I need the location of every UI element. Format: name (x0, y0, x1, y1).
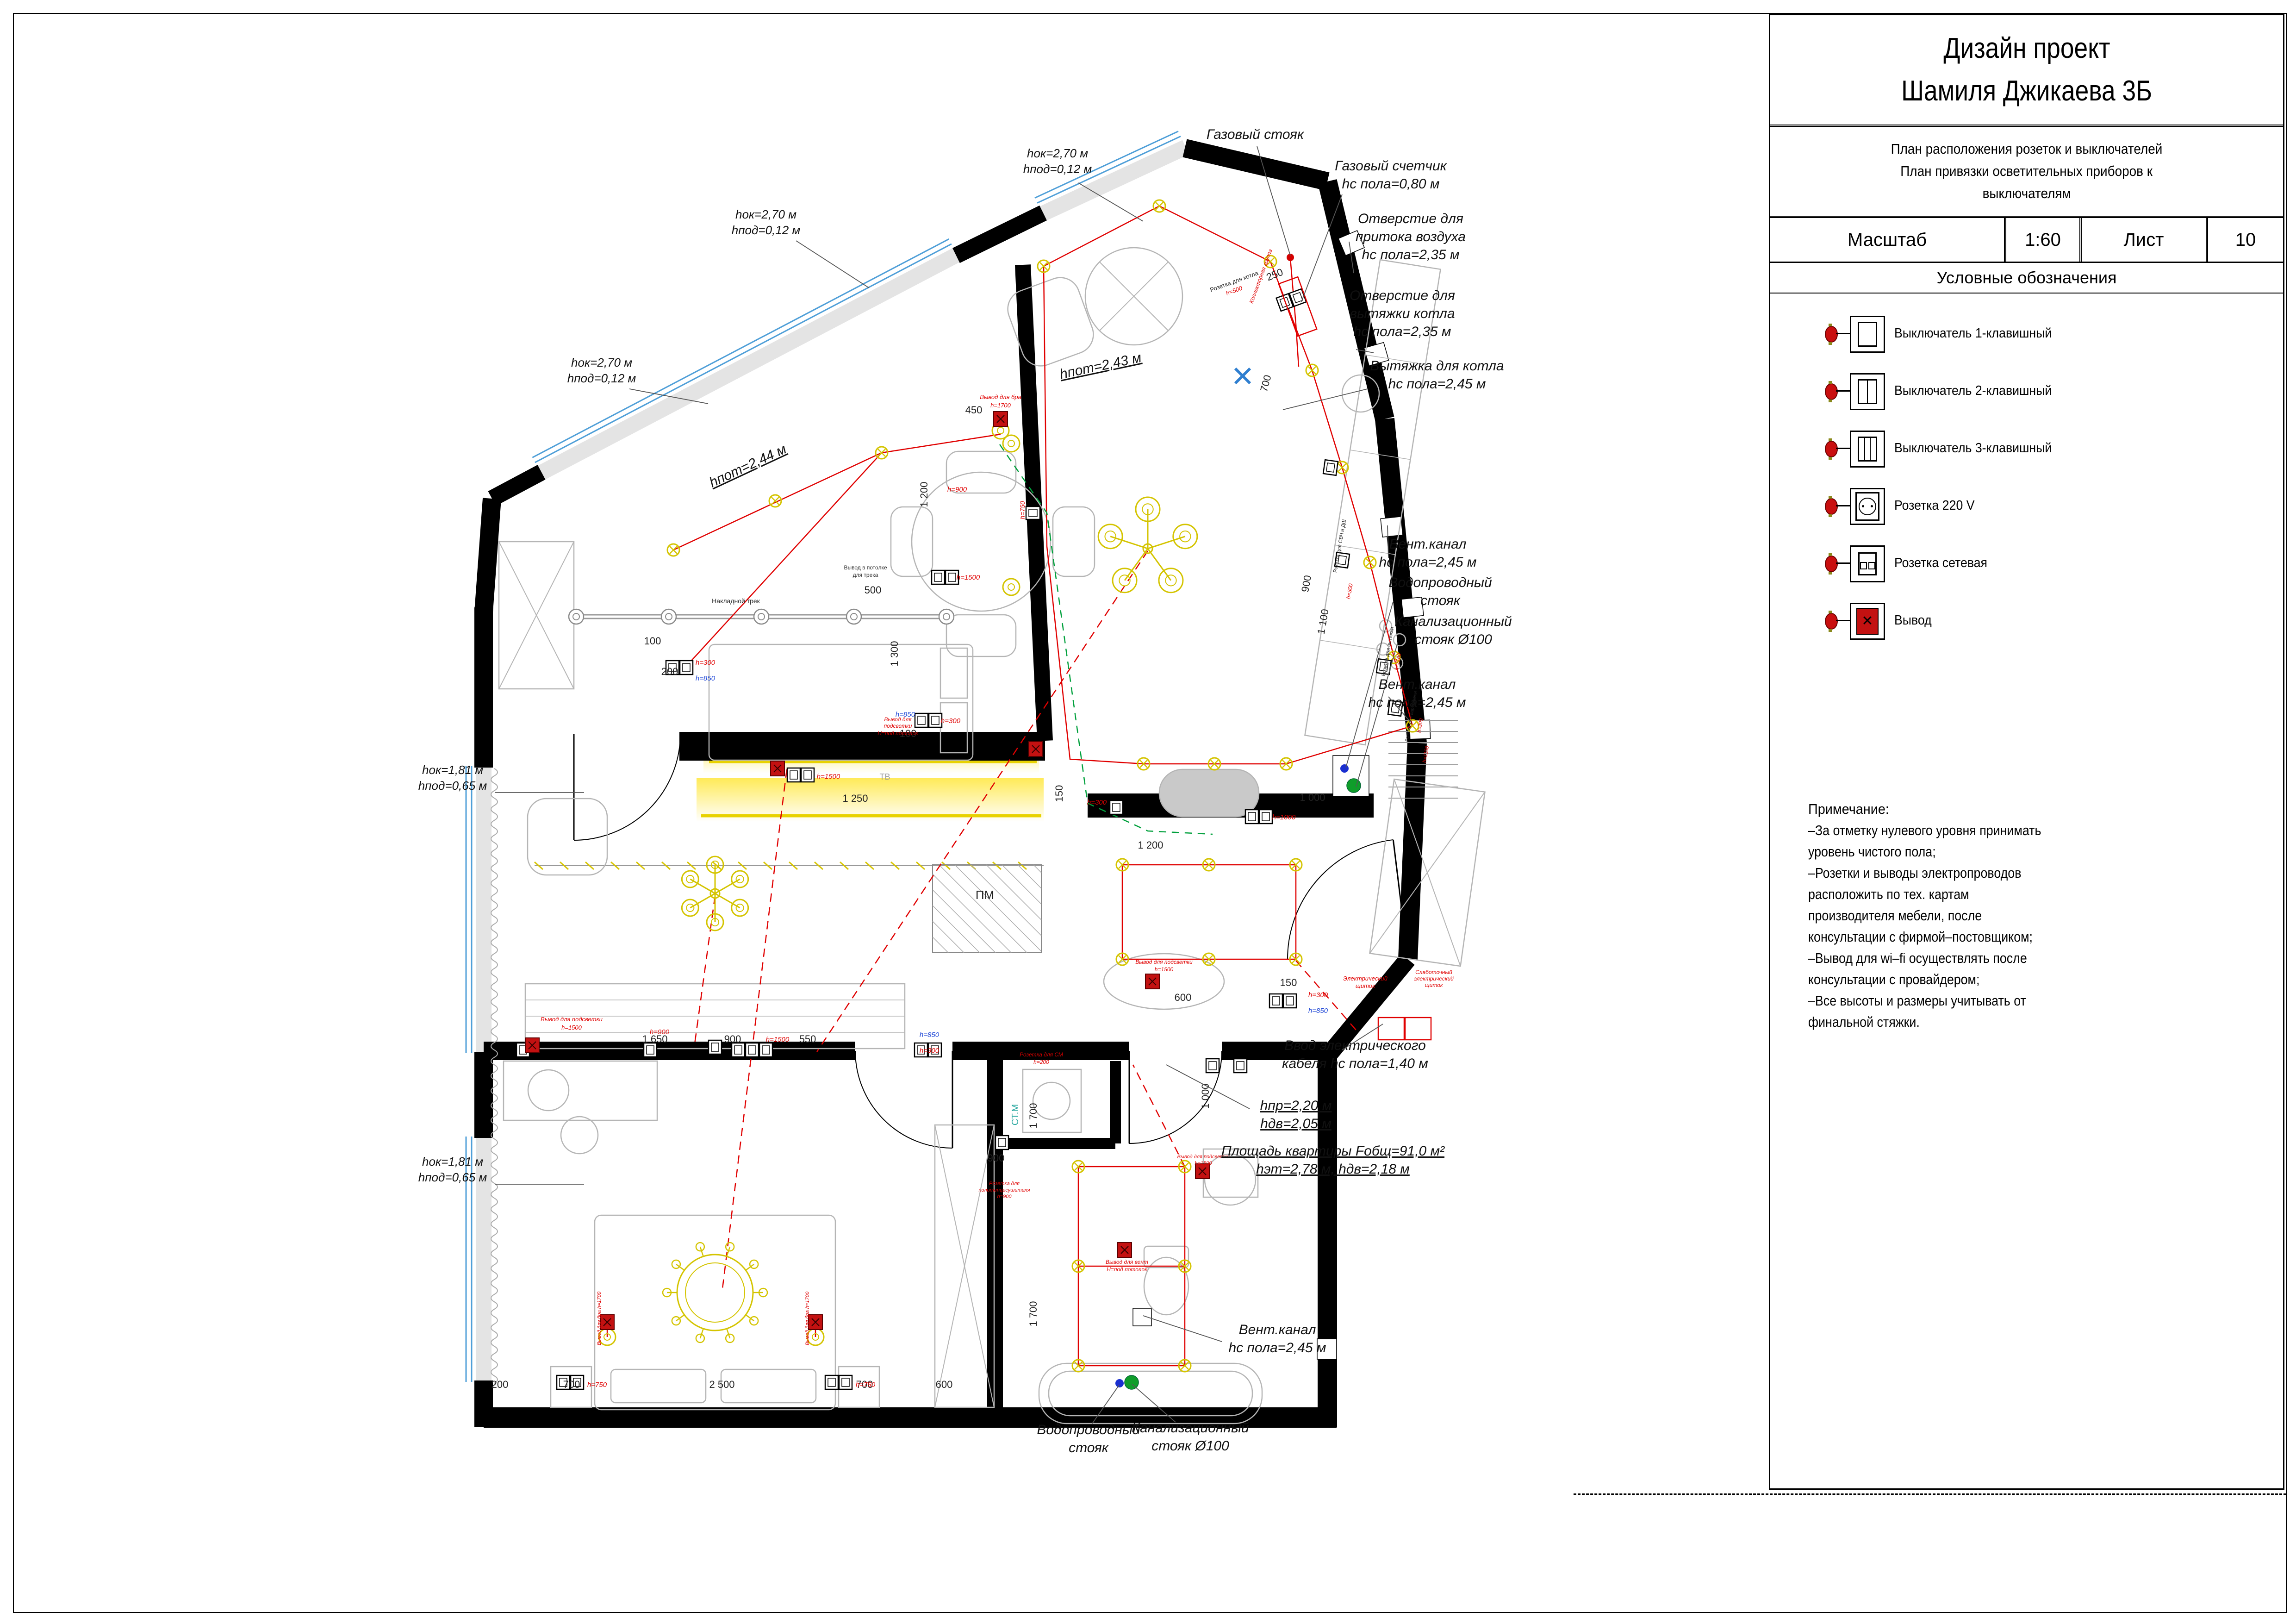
legend-item-socket-network: Розетка сетевая (1825, 544, 2283, 581)
wire-red-dashed (694, 896, 715, 1047)
callout-text: Вытяжка для котла (1370, 358, 1504, 374)
plan-small-label: электрический (1414, 975, 1454, 982)
callout-text: hс пола=2,45 м (1388, 376, 1486, 392)
callout-text: притока воздуха (1356, 229, 1466, 244)
door-swing-arc (574, 734, 680, 840)
hatch-line (955, 865, 1041, 951)
callout-text: hпод=0,65 м (418, 779, 487, 793)
callout-text: hок=2,70 м (735, 207, 796, 221)
dimension-text: 1 700 (1027, 1301, 1039, 1326)
legend-item-switch-1key: Выключатель 1-клавишный (1825, 315, 2283, 352)
plan-small-label: h=1500 (1155, 966, 1174, 973)
dimension-text: 1 000 (1300, 792, 1325, 803)
dimension-text: 200 (492, 1379, 509, 1390)
drawing-sheet: 2007002 5007006005501 6509001 2505001 30… (0, 0, 2296, 1624)
plan-small-label: щиток (1425, 982, 1443, 988)
furniture (528, 799, 607, 875)
track-spot-icon (569, 609, 584, 624)
plan-small-label: Вывод в потолке (844, 564, 887, 571)
socket-icon (915, 713, 942, 727)
plan-shape (1245, 810, 1258, 824)
notes-title: Примечание: (1808, 799, 2221, 820)
hatch-line (933, 937, 948, 953)
dimension-text: 900 (988, 1152, 1005, 1164)
legend: Выключатель 1-клавишный Выключатель 2-кл… (1770, 294, 2283, 639)
dimension-text: 1 700 (1027, 1103, 1039, 1128)
furniture (611, 1369, 706, 1403)
note-line: финальной стяжки. (1808, 1012, 2192, 1033)
project-title-line2: Шамиля Джикаева 3Б (1901, 72, 2152, 111)
furniture (504, 1061, 657, 1120)
window-glass-line (532, 239, 949, 457)
plan-small-label: подсветки (884, 723, 912, 729)
plan-shape (677, 1255, 753, 1330)
plan-small-label: Электрический (1343, 975, 1388, 982)
callout-leader (1143, 1316, 1222, 1342)
wall (484, 499, 492, 612)
callout-text: кабеля hс пола=1,40 м (1282, 1056, 1428, 1071)
plan-small-label: для трека (853, 572, 878, 578)
plan-small-label: h=850 (696, 675, 716, 682)
callout-text: hс пола=2,45 м (1379, 555, 1477, 570)
callout-text: hпод=0,12 м (732, 223, 801, 237)
water-riser-dot (1115, 1379, 1124, 1387)
plan-small-label: Накладной трек (712, 597, 760, 605)
callout-text: стояк (1069, 1440, 1109, 1455)
subtitle-line2: План привязки осветительных приборов к (1901, 160, 2153, 182)
track-spot-icon (846, 609, 861, 624)
furniture (946, 615, 1016, 656)
note-line: уровень чистого пола; (1808, 841, 2192, 862)
callout-text: Водопроводный (1388, 575, 1492, 590)
switch-1key-icon (1825, 315, 1894, 352)
callout-text: стояк Ø100 (1414, 632, 1492, 647)
plan-small-label: Розетка для (989, 1181, 1020, 1187)
plan-small-label: h=1000 (1272, 813, 1296, 821)
callout-text: Канализационный (1394, 614, 1512, 629)
track-spot-icon (754, 609, 769, 624)
callout-leader (796, 241, 869, 288)
legend-item-switch-2key: Выключатель 2-клавишный (1825, 372, 2283, 409)
vent-opening (1133, 1308, 1151, 1326)
wire-red-dashed (1133, 1065, 1185, 1167)
plan-small-label: h=300 (696, 659, 716, 667)
sewer-riser-dot (1125, 1375, 1139, 1389)
plan-shape (644, 1043, 657, 1057)
wire-red (1122, 865, 1296, 959)
plan-shape (1269, 994, 1282, 1008)
water-riser-dot (1340, 764, 1349, 773)
scale-row: Масштаб 1:60 Лист 10 (1770, 218, 2283, 263)
room-height-label: hпот=2,44 м (707, 441, 789, 490)
electrical-panel (1405, 1018, 1431, 1040)
hatch-line (933, 921, 964, 953)
plan-shape (1259, 810, 1272, 824)
dimension-text: 1 250 (842, 793, 868, 804)
plan-small-label: h=200 (1033, 1059, 1049, 1065)
callout-text: hок=1,81 м (422, 1155, 483, 1168)
callout-text: hдв=2,05 м (1260, 1116, 1332, 1131)
socket-icon (644, 1043, 657, 1057)
sheet-label: Лист (2079, 218, 2206, 262)
legend-item-label: Выключатель 3-клавишный (1894, 441, 2052, 456)
callout-text: Площадь квартиры Fобщ=91,0 м² (1221, 1143, 1445, 1159)
sheet-number: 10 (2206, 218, 2283, 262)
title-block-header: Дизайн проект Шамиля Джикаева 3Б (1770, 15, 2283, 127)
outlet-lead-icon: ✕ (1825, 602, 1894, 639)
plan-shape (801, 768, 814, 782)
callout-text: вытяжки котла (1350, 306, 1455, 321)
plan-small-label: полотенцесушителя (979, 1187, 1030, 1193)
callout-text: hпр=2,20 м (1260, 1098, 1332, 1113)
plan-small-label: h=750 (587, 1381, 607, 1389)
socket-220v-icon (1825, 487, 1894, 524)
note-line: –За отметку нулевого уровня принимать (1808, 820, 2192, 841)
plan-small-label: h=900 (650, 1028, 670, 1036)
plan-shape (1026, 506, 1040, 519)
dimension-text: 900 (724, 1033, 741, 1045)
chandelier-icon (663, 1243, 767, 1343)
plan-shape (915, 713, 928, 727)
legend-item-switch-3key: Выключатель 3-клавишный (1825, 430, 2283, 467)
dimension-text: 250 (1264, 266, 1284, 283)
wire-red-dashed (722, 769, 787, 1293)
plan-small-label: h=850 (920, 1031, 940, 1039)
legend-item-label: Вывод (1894, 613, 1932, 628)
callout-text: Ввод электрического (1284, 1038, 1426, 1053)
wall (1185, 148, 1327, 181)
title-block: Дизайн проект Шамиля Джикаева 3Б План ра… (1769, 14, 2284, 1490)
callout-text: hок=2,70 м (571, 356, 632, 369)
furniture (1053, 507, 1095, 576)
callout-text: hок=1,81 м (422, 763, 483, 777)
socket-icon (932, 570, 958, 584)
plan-small-label: h=750 (1019, 501, 1026, 519)
plan-small-label: h=1500 (1195, 1161, 1212, 1166)
plan-shape (732, 1043, 745, 1057)
note-line: –Все высоты и размеры учитывать от (1808, 990, 2192, 1012)
scale-label: Масштаб (1770, 218, 2004, 262)
switch-2key-icon (1825, 372, 1894, 409)
dimension-text: 550 (799, 1033, 816, 1045)
callout-text: Вент.канал (1239, 1322, 1316, 1337)
dimension-text: 1 300 (889, 641, 900, 666)
window-glass-line (535, 244, 952, 462)
notes-block: Примечание: –За отметку нулевого уровня … (1808, 799, 2252, 1033)
plan-shape (996, 1136, 1008, 1149)
plan-small-label: Розетка для СМ (1020, 1051, 1063, 1058)
legend-item-label: Розетка сетевая (1894, 556, 1987, 571)
wall-sconce-icon (1003, 579, 1020, 595)
socket-icon (1110, 800, 1123, 814)
hatch-line (1002, 865, 1041, 904)
plan-small-label: Вывод для подсветки (1135, 959, 1193, 965)
callout-text: Газовый счетчик (1335, 158, 1447, 174)
plan-small-label: СТ.М (1010, 1104, 1020, 1125)
socket-icon (996, 1136, 1008, 1149)
room-height-label: hпот=2,43 м (1058, 350, 1143, 382)
plan-small-label: Слаботочный (1415, 969, 1452, 975)
plan-small-label: Вывод для бра h=1700 (597, 1291, 602, 1345)
socket-icon (1234, 1059, 1247, 1073)
callout-text: Отверстие для (1358, 211, 1463, 226)
dimension-text: 150 (1280, 977, 1297, 988)
callout-text: hс пола=2,35 м (1354, 324, 1451, 339)
callout-text: Газовый стояк (1207, 127, 1305, 142)
callout-text: Канализационный (1132, 1420, 1249, 1436)
plan-small-label: Н=под потолок (877, 730, 919, 737)
plan-shape (787, 768, 800, 782)
door-swing-arc (855, 1051, 952, 1148)
callout-text: стояк Ø100 (1151, 1438, 1229, 1454)
dimension-text: 2 500 (709, 1379, 734, 1390)
legend-item-socket-220v: Розетка 220 V (1825, 487, 2283, 524)
plan-shape (1234, 1059, 1247, 1073)
hatch-line (933, 874, 1011, 953)
callout-text: hс пола=2,45 м (1369, 695, 1466, 710)
callout-leader (1283, 389, 1368, 410)
wardrobe-cross (1370, 779, 1485, 966)
plan-shape (1283, 994, 1296, 1008)
chandelier-branch (727, 1329, 730, 1338)
callout-text: hэт=2,78 м, hдв=2,18 м (1256, 1162, 1410, 1177)
callout-text: hпод=0,12 м (567, 371, 636, 385)
track-spot-icon (661, 609, 676, 624)
wall-sconce-icon (1008, 440, 1014, 447)
dimension-text: 900 (1299, 574, 1313, 593)
dimension-text: 700 (1258, 374, 1274, 393)
note-line: консультации с провайдером; (1808, 969, 2192, 990)
callout-text: Вент.канал (1389, 537, 1467, 552)
cut-line (1574, 1493, 2286, 1495)
wall (492, 472, 541, 499)
callout-text: hс пола=0,80 м (1342, 176, 1440, 192)
plan-shape (1323, 460, 1338, 475)
wall-sconce-icon (997, 427, 1004, 434)
chandelier-branch (700, 1329, 703, 1338)
chandelier-branch (700, 1247, 703, 1256)
plan-small-label: Вывод для бра (980, 394, 1021, 400)
plan-small-label: h=850 (1308, 1007, 1328, 1015)
dimension-text: 1 100 (1315, 608, 1331, 635)
dimension-text: 700 (563, 1379, 580, 1390)
plan-small-label: h=1700 (990, 402, 1011, 409)
callout-text: hс пола=2,45 м (1229, 1340, 1326, 1355)
legend-title: Условные обозначения (1770, 263, 2283, 294)
callout-text: Водопроводный (1037, 1422, 1140, 1437)
plan-small-label: h=900 (997, 1194, 1012, 1199)
plan-shape (1206, 1059, 1219, 1073)
notes-lines: –За отметку нулевого уровня приниматьуро… (1808, 820, 2221, 1033)
callout-text: Отверстие для (1350, 288, 1455, 303)
plan-shape (709, 1040, 722, 1054)
socket-icon (825, 1375, 852, 1389)
plan-small-label: Вывод для вент (1106, 1259, 1148, 1265)
wall (1023, 265, 1045, 741)
legend-item-label: Розетка 220 V (1894, 498, 1975, 513)
plan-small-label: h=1500 (766, 1036, 790, 1043)
scale-value: 1:60 (2004, 218, 2079, 262)
note-line: –Вывод для wi–fi осуществлять после (1808, 948, 2192, 969)
subtitle-line1: План расположения розеток и выключателей (1891, 138, 2163, 160)
wire-red (1290, 258, 1299, 367)
dimension-text: 200 (661, 666, 678, 677)
note-line: производителя мебели, после (1808, 905, 2192, 926)
plan-shape (746, 1043, 759, 1057)
plan-small-label: h=1500 (561, 1024, 582, 1031)
switch-3key-icon (1825, 430, 1894, 467)
plan-shape (680, 661, 693, 675)
socket-icon (709, 1040, 722, 1054)
socket-icon (787, 768, 814, 782)
plan-shape (685, 1263, 745, 1322)
legend-item-label: Выключатель 2-клавишный (1894, 383, 2052, 399)
plan-small-label: h=750 (856, 1381, 876, 1389)
wall (956, 213, 1043, 256)
plan-shape (759, 1043, 772, 1057)
legend-item-outlet-lead: ✕ Вывод (1825, 602, 2283, 639)
dimension-text: 100 (644, 635, 661, 647)
dimension-text: 1 200 (918, 481, 930, 507)
callout-text: hок=2,70 м (1027, 146, 1088, 160)
plan-small-label: Вывод для подсветки (541, 1016, 603, 1023)
project-title-line1: Дизайн проект (1943, 29, 2110, 68)
furniture-divider (1320, 640, 1380, 650)
plan-shape (839, 1375, 852, 1389)
dimension-text: 450 (965, 404, 983, 416)
hatch-line (933, 906, 980, 953)
socket-icon (732, 1043, 772, 1057)
callout-text: стояк (1420, 593, 1461, 608)
dimension-text: 500 (865, 584, 882, 596)
socket-icon (1323, 460, 1338, 475)
plan-small-label: h=300 (920, 1047, 940, 1055)
callout-text: hпод=0,12 м (1023, 162, 1092, 176)
legend-item-label: Выключатель 1-клавишный (1894, 326, 2052, 341)
plan-small-label: h=1500 (957, 574, 980, 581)
plan-small-label: Н=под потолок (1107, 1266, 1148, 1273)
socket-icon (1206, 1059, 1219, 1073)
plan-small-label: ПМ (976, 888, 994, 902)
socket-icon (1269, 994, 1296, 1008)
dimension-text: 600 (1175, 992, 1192, 1003)
hatch-area (933, 865, 1041, 953)
track-spot-icon (939, 609, 954, 624)
furniture (1159, 769, 1259, 817)
hatch-line (986, 865, 1041, 920)
note-line: консультации с фирмой–постовщиком; (1808, 926, 2192, 948)
plan-shape (1165, 575, 1176, 586)
electrical-panel (1378, 1018, 1404, 1040)
wall-sconce-icon (1008, 584, 1014, 590)
plan-small-label: h=300 (1087, 799, 1107, 806)
socket-icon (1245, 810, 1272, 824)
socket-icon (1026, 506, 1040, 519)
plan-shape (932, 570, 945, 584)
callout-text: hс пола=2,35 м (1362, 247, 1460, 262)
sewer-riser-dot (1347, 779, 1361, 793)
note-line: –Розетки и выводы электропроводов (1808, 862, 2192, 884)
plan-small-label: h=300 (1345, 583, 1354, 600)
plan-shape (1110, 800, 1123, 814)
hatch-line (939, 865, 1027, 953)
plan-shape (825, 1375, 838, 1389)
dimension-text: 1 200 (1138, 839, 1163, 851)
plan-small-label: h=1500 (817, 773, 840, 781)
chandelier-branch (727, 1247, 730, 1256)
hatch-line (1018, 865, 1041, 888)
plan-small-label: Вывод для (884, 716, 912, 723)
plan-small-label: ТВ (879, 772, 890, 781)
dimension-text: 600 (936, 1379, 953, 1390)
note-line: расположить по тех. картам (1808, 884, 2192, 905)
furniture-circle (528, 1070, 569, 1111)
dimension-text: 150 (1053, 785, 1065, 802)
furniture-circle (561, 1117, 598, 1154)
subtitle-line3: выключателям (1982, 182, 2071, 205)
callout-text: hпод=0,65 м (418, 1170, 487, 1184)
plan-shape (929, 713, 942, 727)
furniture (721, 1369, 816, 1403)
socket-network-icon (1825, 544, 1894, 581)
plan-small-label: h=300 (1308, 991, 1328, 999)
callout-text: Вент.канал (1379, 677, 1456, 692)
plan-small-label: h=900 (947, 486, 967, 493)
plan-small-label: h=300 (941, 717, 961, 725)
plan-small-label: Вывод для бра h=1700 (805, 1291, 810, 1345)
title-block-subtitle: План расположения розеток и выключателей… (1770, 127, 2283, 218)
plan-small-label: щиток (1356, 982, 1375, 989)
